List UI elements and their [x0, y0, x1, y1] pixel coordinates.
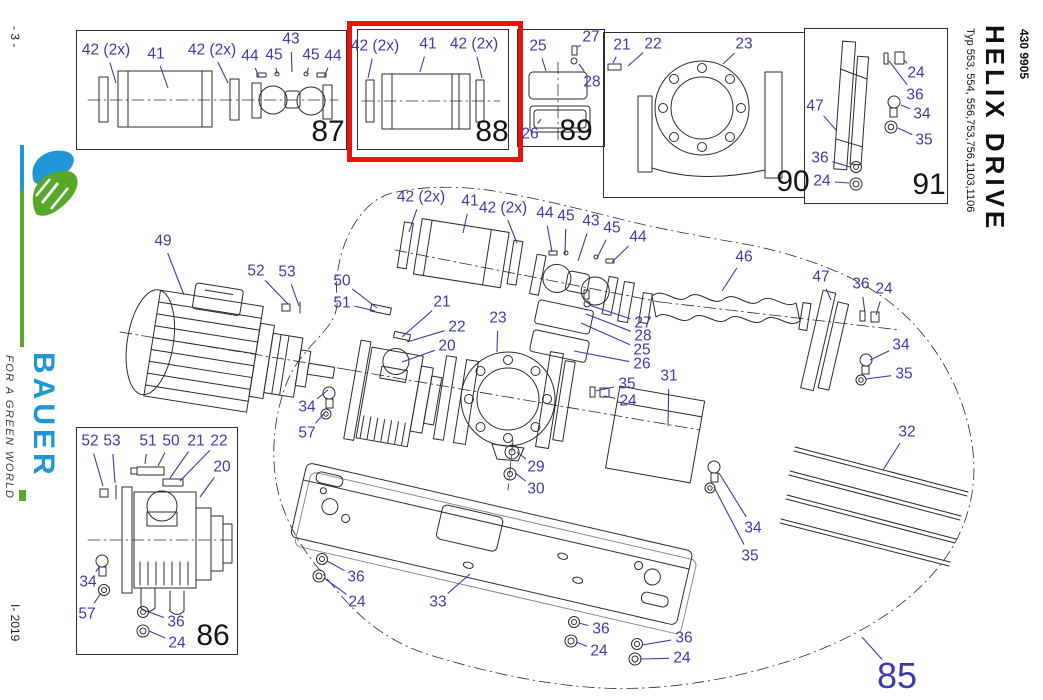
- part-callout-36: 36: [592, 621, 609, 637]
- issue-code: I- 2019: [8, 604, 22, 641]
- part-callout-57: 57: [78, 606, 95, 622]
- part-callout-49: 49: [154, 233, 171, 249]
- part-callout-45: 45: [265, 47, 282, 63]
- part-callout-52: 52: [247, 263, 264, 279]
- assembly-number-85: 85: [877, 658, 917, 694]
- part-callout-23: 23: [735, 36, 752, 52]
- part-callout-36: 36: [167, 614, 184, 630]
- part-callout-24: 24: [907, 65, 924, 81]
- doc-type-list: Typ 553, 554, 556,753,756,1103,1106: [964, 28, 976, 212]
- part-callout-35: 35: [895, 366, 912, 382]
- part-callout-35: 35: [741, 548, 758, 564]
- part-callout-42-2x-: 42 (2x): [82, 42, 130, 58]
- part-callout-34: 34: [79, 574, 96, 590]
- part-callout-36: 36: [811, 150, 828, 166]
- part-callout-45: 45: [603, 220, 620, 236]
- doc-title: HELIX DRIVE: [979, 25, 1010, 232]
- part-callout-34: 34: [913, 106, 930, 122]
- part-callout-43: 43: [282, 31, 299, 47]
- part-callout-51: 51: [139, 433, 156, 449]
- part-callout-42-2x-: 42 (2x): [450, 36, 498, 52]
- part-callout-52: 52: [81, 433, 98, 449]
- brand-wordmark: BAUER: [26, 352, 60, 479]
- part-callout-27: 27: [582, 29, 599, 45]
- part-callout-21: 21: [433, 294, 450, 310]
- part-callout-23: 23: [489, 310, 506, 326]
- part-callout-57: 57: [298, 425, 315, 441]
- inset-number-90: 90: [776, 167, 809, 197]
- part-callout-21: 21: [187, 433, 204, 449]
- doc-number: 430 9905: [1017, 29, 1031, 79]
- inset-number-91: 91: [912, 170, 945, 200]
- part-callout-22: 22: [644, 36, 661, 52]
- part-callout-36: 36: [906, 87, 923, 103]
- part-callout-31: 31: [660, 368, 677, 384]
- part-callout-33: 33: [429, 594, 446, 610]
- part-callout-22: 22: [448, 319, 465, 335]
- part-callout-41: 41: [461, 193, 478, 209]
- catalog-page: - 3 - FOR A GREEN WORLD BAUER I- 2019 43…: [0, 0, 1043, 700]
- part-callout-26: 26: [633, 356, 650, 372]
- part-callout-47: 47: [806, 98, 823, 114]
- part-callout-24: 24: [875, 281, 892, 297]
- part-callout-24: 24: [590, 643, 607, 659]
- inset-number-88: 88: [475, 117, 508, 147]
- part-callout-46: 46: [735, 249, 752, 265]
- part-callout-44: 44: [324, 48, 341, 64]
- part-callout-25: 25: [529, 38, 546, 54]
- part-callout-53: 53: [278, 264, 295, 280]
- part-callout-53: 53: [103, 433, 120, 449]
- part-callout-35: 35: [915, 132, 932, 148]
- part-callout-20: 20: [213, 459, 230, 475]
- part-callout-24: 24: [168, 635, 185, 651]
- part-callout-44: 44: [629, 229, 646, 245]
- part-callout-20: 20: [438, 338, 455, 354]
- part-callout-43: 43: [582, 213, 599, 229]
- part-callout-42-2x-: 42 (2x): [188, 42, 236, 58]
- part-callout-24: 24: [673, 650, 690, 666]
- inset-number-86: 86: [196, 621, 229, 651]
- part-callout-41: 41: [419, 36, 436, 52]
- part-callout-26: 26: [521, 126, 538, 142]
- part-callout-50: 50: [162, 433, 179, 449]
- part-callout-21: 21: [613, 37, 630, 53]
- part-callout-28: 28: [583, 74, 600, 90]
- part-callout-42-2x-: 42 (2x): [479, 200, 527, 216]
- part-callout-44: 44: [241, 48, 258, 64]
- part-callout-41: 41: [147, 46, 164, 62]
- part-callout-24: 24: [619, 393, 636, 409]
- part-callout-36: 36: [347, 569, 364, 585]
- inset-box-90: [603, 32, 805, 198]
- part-callout-30: 30: [527, 481, 544, 497]
- part-callout-42-2x-: 42 (2x): [351, 38, 399, 54]
- part-callout-34: 34: [298, 399, 315, 415]
- part-callout-35: 35: [618, 376, 635, 392]
- part-callout-24: 24: [813, 173, 830, 189]
- part-callout-45: 45: [302, 47, 319, 63]
- page-number: - 3 -: [8, 26, 22, 47]
- part-callout-34: 34: [744, 520, 761, 536]
- part-callout-44: 44: [536, 205, 553, 221]
- part-callout-29: 29: [527, 459, 544, 475]
- part-callout-42-2x-: 42 (2x): [397, 189, 445, 205]
- part-callout-47: 47: [812, 269, 829, 285]
- part-callout-24: 24: [348, 594, 365, 610]
- part-callout-22: 22: [210, 433, 227, 449]
- brand-tagline: FOR A GREEN WORLD: [3, 355, 15, 499]
- part-callout-36: 36: [852, 276, 869, 292]
- inset-number-89: 89: [559, 116, 592, 146]
- part-callout-50: 50: [333, 273, 350, 289]
- part-callout-51: 51: [333, 295, 350, 311]
- inset-number-87: 87: [311, 117, 344, 147]
- part-callout-45: 45: [557, 208, 574, 224]
- part-callout-36: 36: [675, 630, 692, 646]
- part-callout-34: 34: [892, 337, 909, 353]
- part-callout-32: 32: [898, 424, 915, 440]
